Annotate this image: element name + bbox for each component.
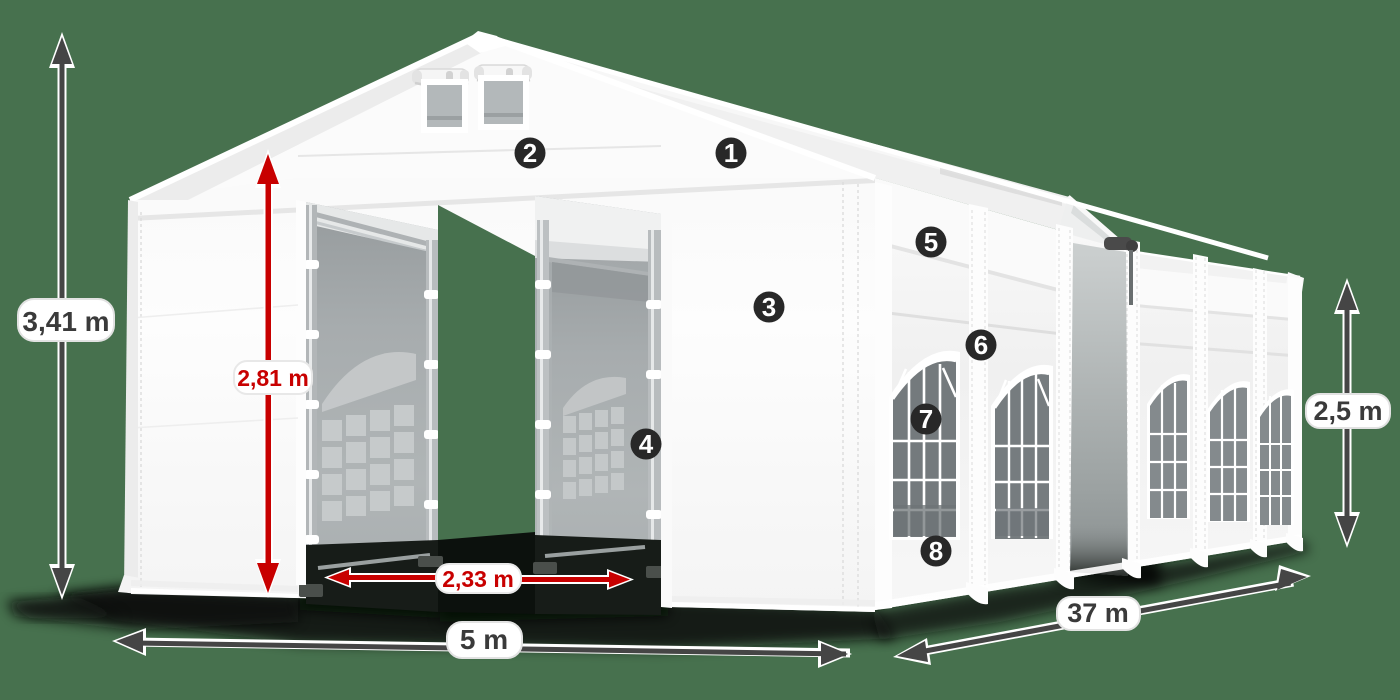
svg-text:2: 2 [523, 138, 537, 168]
svg-text:2,33 m: 2,33 m [442, 566, 514, 592]
svg-text:7: 7 [919, 404, 933, 434]
svg-text:37 m: 37 m [1067, 598, 1129, 628]
svg-text:3: 3 [762, 292, 776, 322]
svg-text:2,81 m: 2,81 m [237, 365, 309, 391]
svg-text:5 m: 5 m [460, 624, 508, 655]
svg-text:4: 4 [639, 429, 654, 459]
svg-text:3,41 m: 3,41 m [22, 306, 109, 337]
svg-text:2,5 m: 2,5 m [1313, 396, 1382, 426]
svg-text:6: 6 [974, 330, 988, 360]
svg-text:8: 8 [929, 536, 943, 566]
svg-text:5: 5 [924, 227, 938, 257]
svg-text:1: 1 [724, 138, 738, 168]
